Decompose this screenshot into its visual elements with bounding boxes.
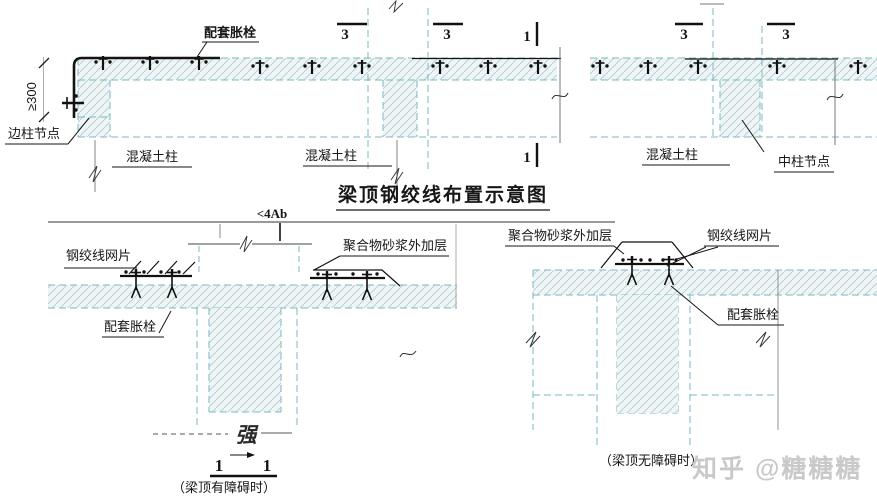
bolt-label: 配套胀栓 bbox=[104, 319, 156, 334]
spacing-dim-text: <4Ab bbox=[257, 206, 288, 221]
mesh-label: 钢绞线网片 bbox=[707, 228, 772, 243]
dim-300-text: ≥300 bbox=[24, 82, 39, 111]
web-hatch bbox=[209, 308, 281, 412]
section-number: 1 bbox=[215, 456, 224, 475]
center-node-label: 中柱节点 bbox=[778, 154, 830, 169]
slab-hatch bbox=[48, 285, 457, 308]
bolt-label: 配套胀栓 bbox=[727, 307, 779, 322]
section-1-mark: 1 bbox=[523, 150, 531, 166]
watermark: 知乎 @糖糖糖 bbox=[692, 454, 862, 483]
slab-hatch bbox=[533, 270, 877, 295]
break-symbol bbox=[756, 332, 770, 347]
concrete-column-label: 混凝土柱 bbox=[646, 147, 698, 162]
concrete-column-label: 混凝土柱 bbox=[126, 149, 178, 164]
section-3-mark: 3 bbox=[680, 27, 688, 43]
mortar-cover-left-diagram bbox=[310, 256, 400, 286]
caption-obstructed: （梁顶有障碍时） bbox=[172, 480, 276, 495]
edge-node-label: 边柱节点 bbox=[8, 126, 60, 141]
drawing-title: 梁顶钢绞线布置示意图 bbox=[337, 183, 548, 206]
mortar-label: 聚合物砂浆外加层 bbox=[508, 228, 612, 243]
caption-unobstructed: （梁顶无障碍时） bbox=[599, 453, 703, 468]
concrete-column-label: 混凝土柱 bbox=[305, 148, 357, 163]
strand-layout-drawing: 3 3 3 3 1 1 ≥300 配套胀栓 边柱节点 混凝土柱 混凝土柱 混凝土… bbox=[0, 0, 877, 500]
mortar-cover bbox=[601, 242, 693, 268]
section-1-1: <4Ab bbox=[48, 206, 615, 495]
stamp-text: 强 bbox=[236, 423, 260, 447]
beam-hatch bbox=[78, 58, 877, 137]
web-hatch bbox=[617, 295, 678, 413]
top-diagram: 3 3 3 3 1 1 ≥300 配套胀栓 边柱节点 混凝土柱 混凝土柱 混凝土… bbox=[5, 1, 877, 210]
break-symbol bbox=[400, 351, 416, 357]
mesh-label: 钢绞线网片 bbox=[66, 248, 131, 263]
dim-300: ≥300 bbox=[24, 57, 49, 122]
unobstructed-detail: 聚合物砂浆外加层 钢绞线网片 配套胀栓 （梁顶无障碍时） bbox=[505, 228, 877, 468]
section-1-mark: 1 bbox=[523, 29, 531, 45]
section-3-mark: 3 bbox=[782, 27, 790, 43]
mortar-label: 聚合物砂浆外加层 bbox=[343, 238, 447, 253]
section-number: 1 bbox=[263, 456, 272, 475]
section-3-mark: 3 bbox=[443, 27, 451, 43]
section-3-mark: 3 bbox=[341, 27, 349, 43]
bolt-label: 配套胀栓 bbox=[204, 25, 256, 40]
break-symbol bbox=[526, 332, 540, 347]
hidden-outline bbox=[533, 270, 877, 448]
obstruction-wall bbox=[188, 236, 312, 272]
drawing-canvas: 3 3 3 3 1 1 ≥300 配套胀栓 边柱节点 混凝土柱 混凝土柱 混凝土… bbox=[0, 0, 877, 500]
